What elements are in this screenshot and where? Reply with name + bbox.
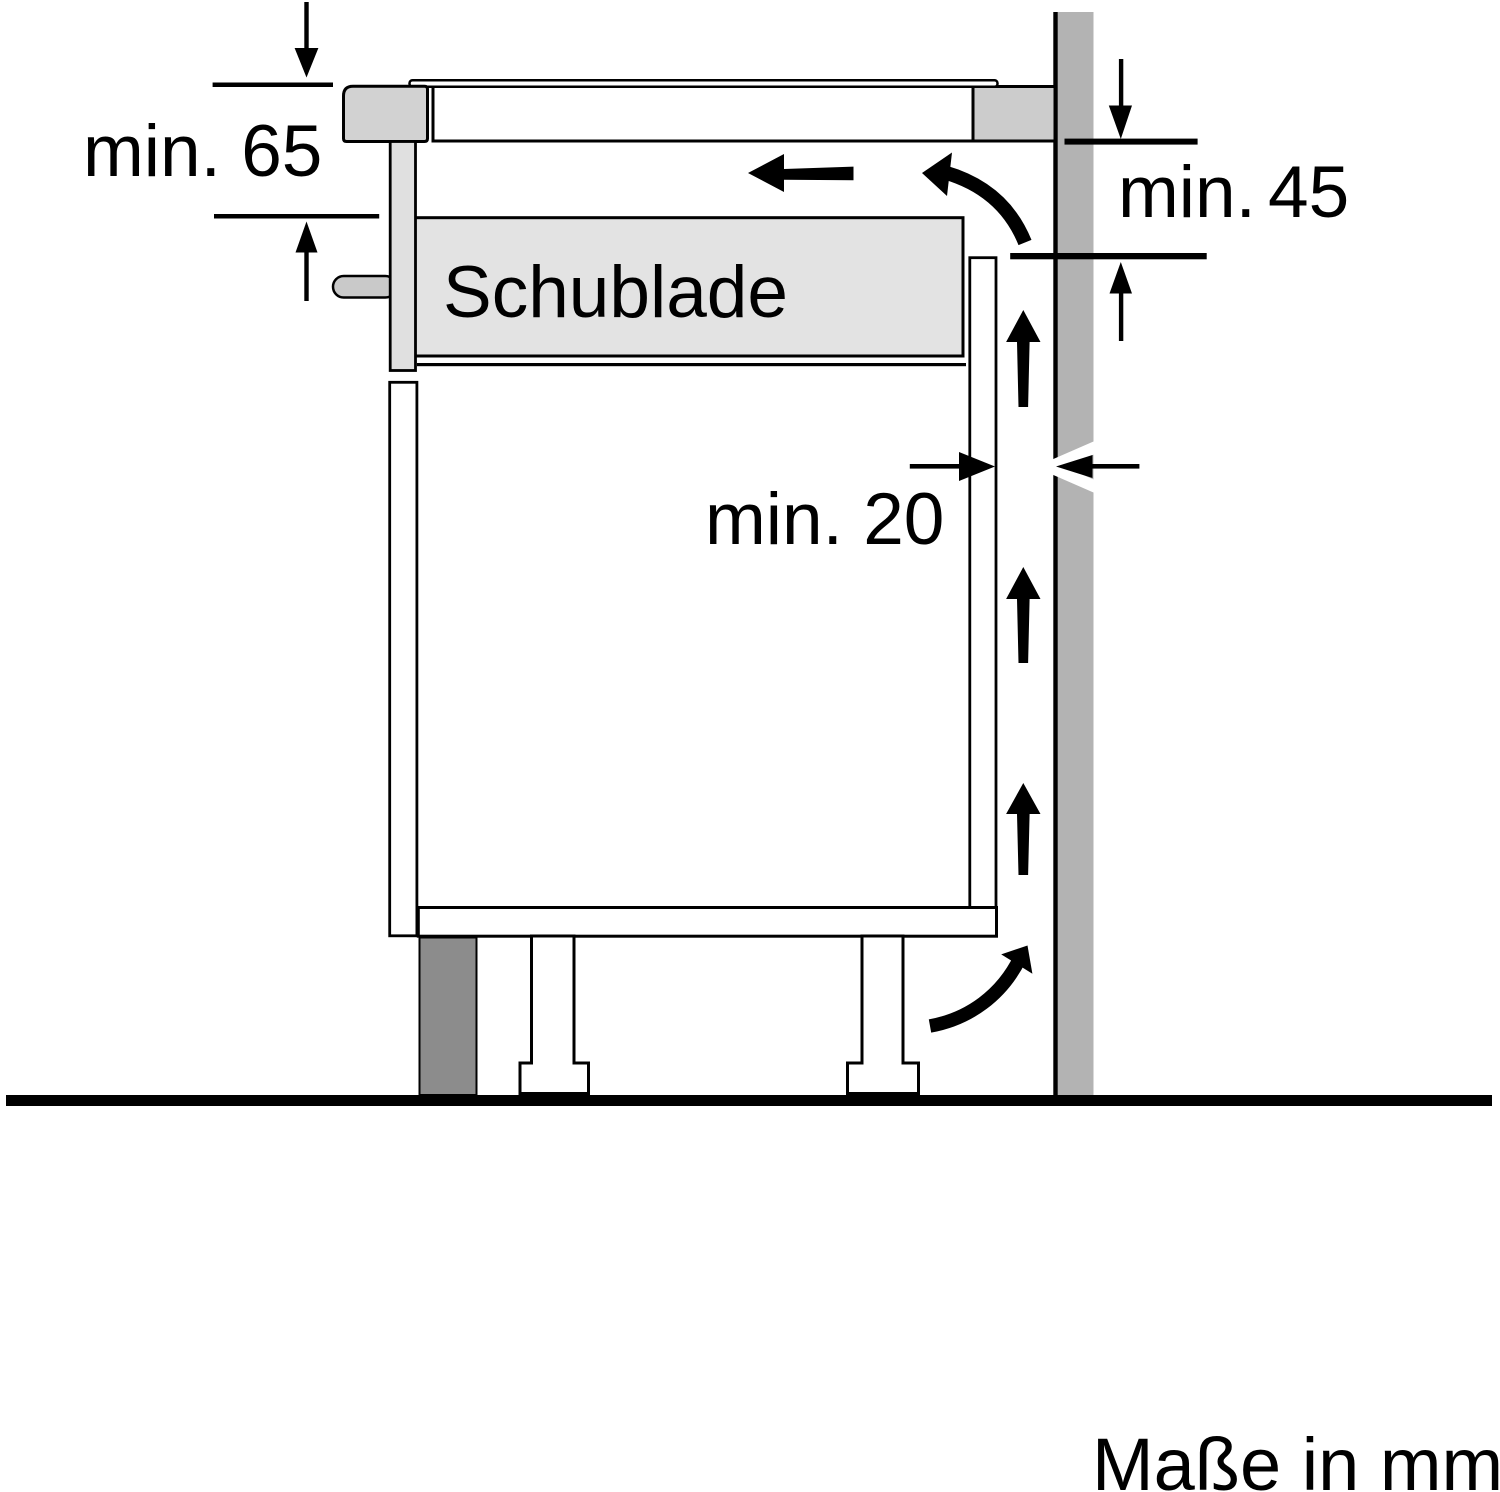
svg-text:Schublade: Schublade [443,252,788,333]
svg-text:min.: min. [1118,152,1256,233]
svg-text:min. 20: min. 20 [705,479,944,560]
svg-text:Maße in mm: Maße in mm [1092,1423,1500,1492]
svg-text:45: 45 [1268,152,1349,233]
svg-text:min. 65: min. 65 [83,111,322,192]
